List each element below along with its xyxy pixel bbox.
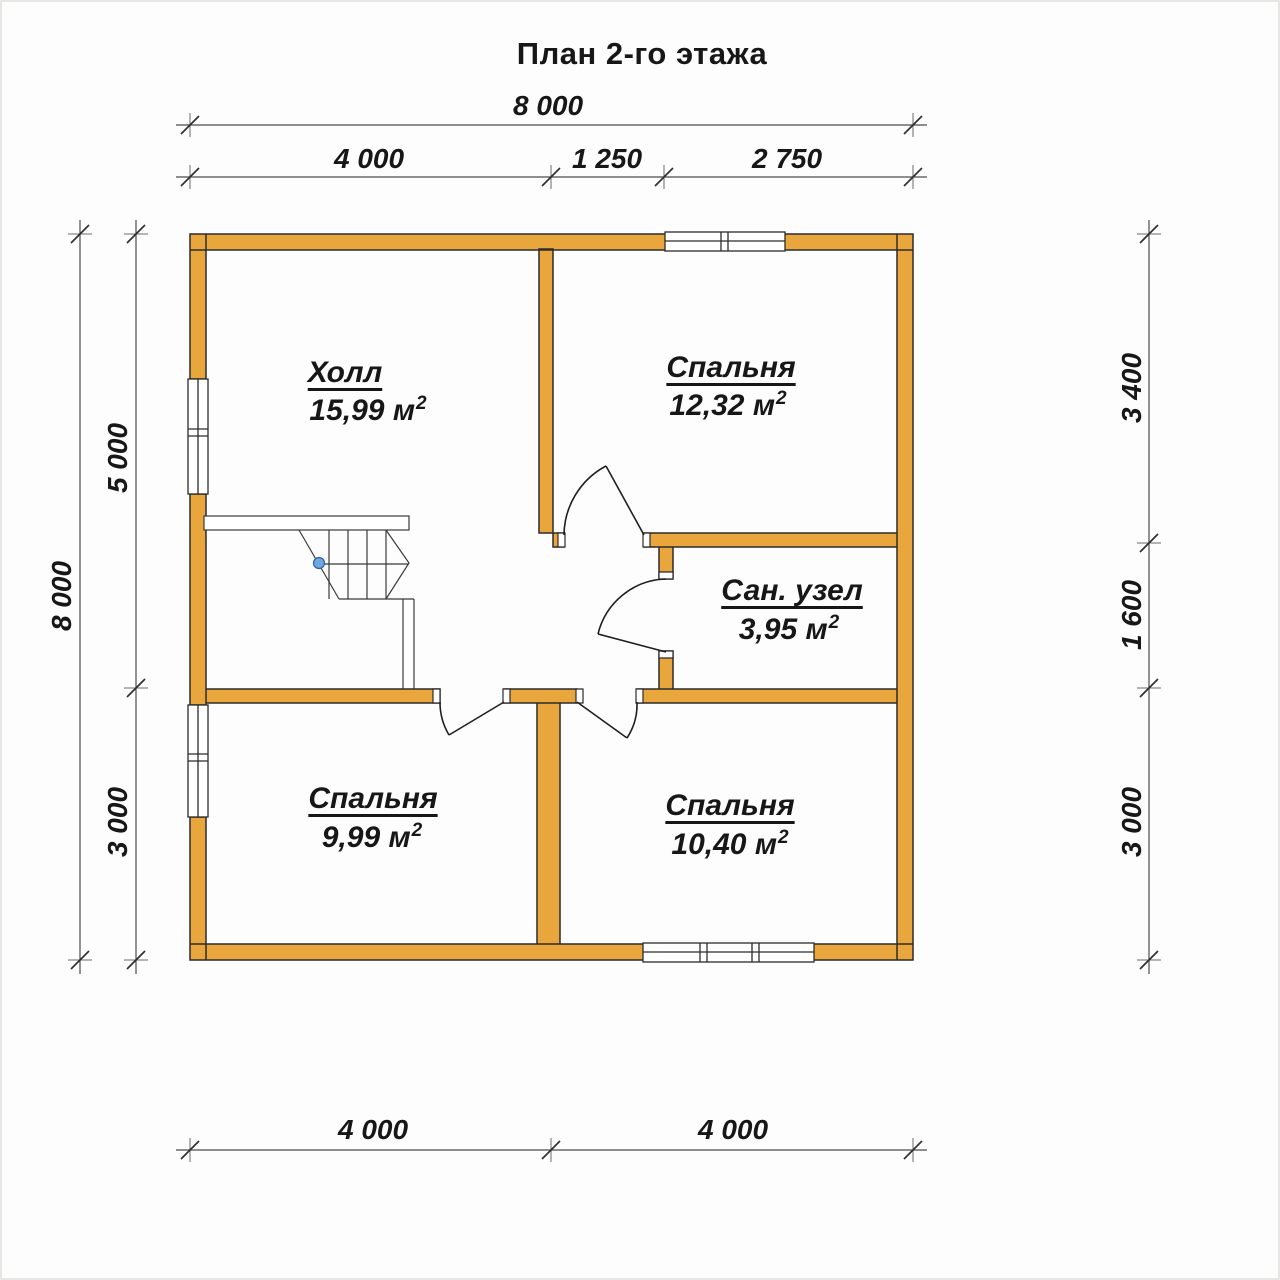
room-area-value: 3,95 м [739, 613, 828, 646]
room-area-value: 15,99 м [309, 394, 415, 427]
dim-bottom-seg-1: 4 000 [338, 1114, 408, 1146]
dim-top-seg-1: 4 000 [334, 143, 404, 175]
room-label-hall: Холл [308, 356, 383, 390]
dim-top-seg-2: 1 250 [572, 143, 642, 175]
room-area-sup: 2 [778, 827, 789, 848]
dim-right-seg-1: 3 400 [1116, 353, 1148, 423]
floor-plan-page: План 2-го этажа 8 000 4 000 1 250 2 750 … [0, 0, 1280, 1280]
dim-top-total: 8 000 [513, 90, 583, 122]
door-bathroom [598, 579, 666, 652]
window-bedroom-bottom-right [643, 943, 814, 962]
room-area-value: 10,40 м [671, 828, 777, 861]
room-label-bedroom-top: Спальня [666, 351, 795, 385]
room-label-bedroom-bottom-right: Спальня [665, 789, 794, 823]
room-area-sup: 2 [412, 820, 423, 841]
room-area-bedroom-bottom-left: 9,99 м2 [322, 821, 423, 855]
dim-left-seg-2: 3 000 [102, 787, 134, 857]
dimension-witness-marks [68, 113, 1161, 1162]
room-area-sup: 2 [416, 393, 427, 414]
window-bedroom-bottom-left [188, 705, 208, 817]
room-area-hall: 15,99 м2 [309, 394, 426, 428]
room-label-bathroom: Сан. узел [721, 574, 863, 608]
dim-left-seg-1: 5 000 [102, 423, 134, 493]
door-bedroom-bottom-left [440, 702, 504, 735]
door-bedroom-top [564, 466, 644, 535]
dim-left-total: 8 000 [46, 561, 78, 631]
staircase-group [204, 516, 414, 689]
floor-plan-drawing [2, 2, 1280, 1280]
page-title: План 2-го этажа [517, 36, 767, 72]
dim-top-seg-3: 2 750 [752, 143, 822, 175]
room-area-bedroom-top: 12,32 м2 [669, 389, 786, 423]
dimension-tick-slashes [71, 116, 1158, 1159]
room-label-bedroom-bottom-left: Спальня [308, 782, 437, 816]
door-jamb-caps [433, 533, 673, 703]
dim-right-seg-2: 1 600 [1116, 580, 1148, 650]
room-area-value: 9,99 м [322, 821, 411, 854]
room-area-sup: 2 [829, 612, 840, 633]
dimension-lines-group [68, 113, 1161, 1162]
window-bedroom-top [665, 232, 785, 251]
door-bedroom-bottom-right [577, 702, 637, 738]
room-area-sup: 2 [776, 388, 787, 409]
dim-right-seg-3: 3 000 [1116, 787, 1148, 857]
room-area-bedroom-bottom-right: 10,40 м2 [671, 828, 788, 862]
stair-newel-dot [314, 558, 325, 569]
room-area-value: 12,32 м [669, 389, 775, 422]
room-area-bathroom: 3,95 м2 [739, 613, 840, 647]
stair-landing-band [204, 516, 409, 530]
window-hall [188, 379, 208, 494]
stairwell-edge [403, 599, 414, 689]
dim-bottom-seg-2: 4 000 [698, 1114, 768, 1146]
